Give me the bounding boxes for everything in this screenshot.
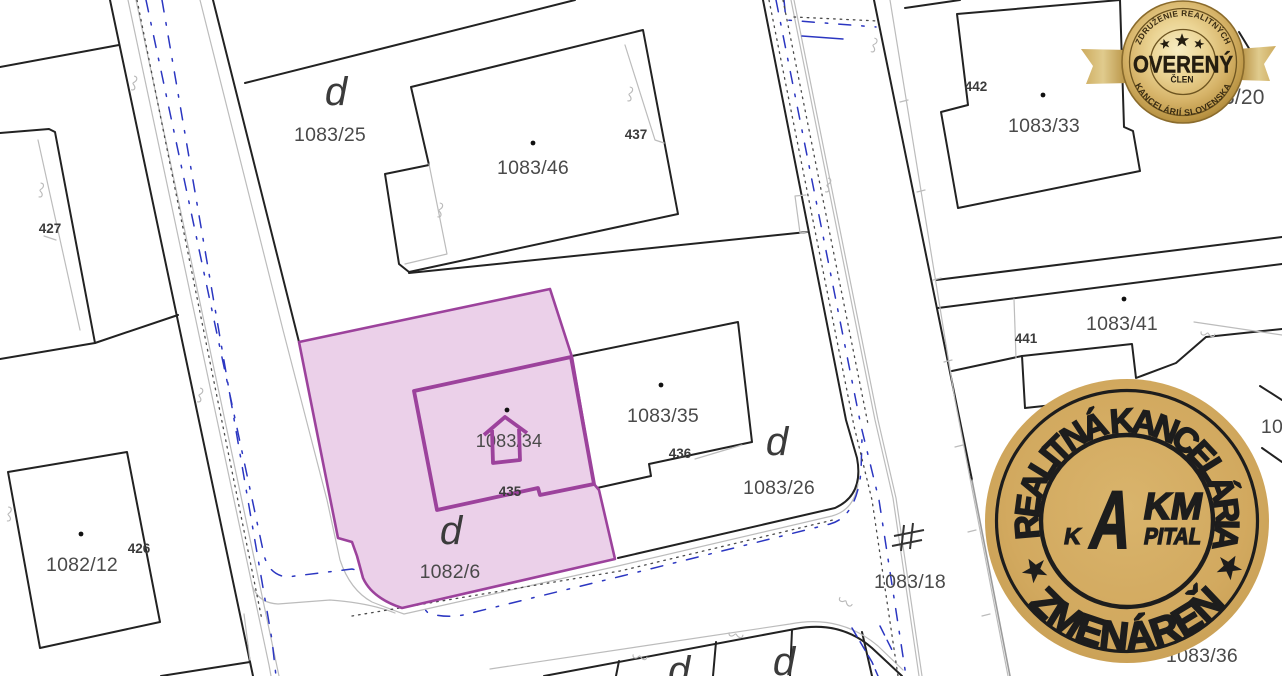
svg-text:435: 435 [499, 484, 522, 499]
svg-text:1083/25: 1083/25 [294, 124, 366, 146]
svg-text:1082/12: 1082/12 [46, 554, 118, 576]
svg-text:442: 442 [965, 79, 988, 94]
svg-text:437: 437 [625, 127, 648, 142]
svg-text:427: 427 [39, 221, 62, 236]
svg-text:1082/6: 1082/6 [420, 561, 481, 583]
svg-text:PITAL: PITAL [1142, 523, 1204, 549]
svg-text:d: d [440, 509, 464, 553]
svg-text:KM: KM [1140, 486, 1206, 528]
svg-text:ČLEN: ČLEN [1171, 74, 1194, 86]
svg-text:436: 436 [669, 446, 692, 461]
svg-text:426: 426 [128, 541, 151, 556]
svg-text:1083/35: 1083/35 [627, 405, 699, 427]
svg-text:1083/26: 1083/26 [743, 477, 815, 499]
svg-text:d: d [773, 640, 797, 676]
svg-text:1083/46: 1083/46 [497, 157, 569, 179]
svg-text:d: d [766, 420, 790, 464]
svg-text:1083: 1083 [1261, 416, 1282, 438]
svg-text:1083/41: 1083/41 [1086, 313, 1158, 335]
svg-text:d: d [668, 649, 692, 676]
svg-text:d: d [325, 70, 349, 114]
svg-text:1083/18: 1083/18 [874, 571, 946, 593]
svg-text:1083/33: 1083/33 [1008, 115, 1080, 137]
svg-text:441: 441 [1015, 331, 1038, 346]
